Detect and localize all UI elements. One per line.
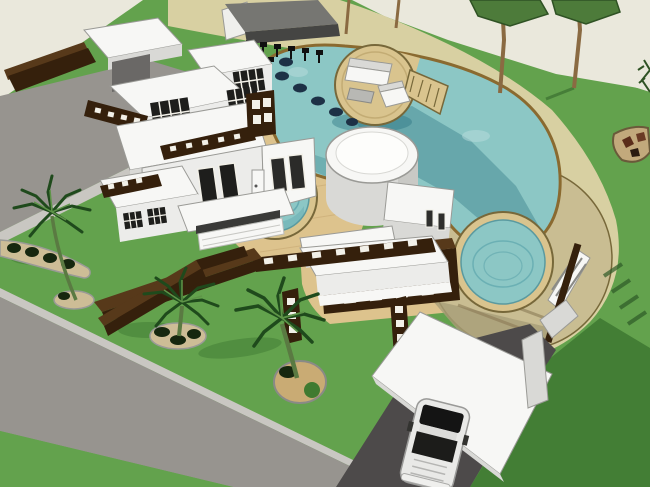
pool-rock — [275, 72, 289, 81]
leg-slot — [395, 306, 403, 313]
trellis-slot — [234, 134, 241, 140]
trellis-slot — [360, 245, 370, 252]
pool-rock — [311, 97, 325, 106]
palm-bed — [274, 361, 326, 403]
window-grid — [147, 207, 167, 225]
door-panel — [288, 154, 305, 189]
bar-stool — [316, 50, 323, 55]
screen-pane — [264, 113, 272, 122]
screen-pane — [263, 98, 271, 107]
bar-stool — [302, 48, 309, 53]
trellis-slot — [218, 137, 225, 143]
door-knob — [255, 185, 258, 188]
bush — [304, 382, 320, 398]
trellis-slot — [170, 146, 177, 152]
water-ripple — [462, 130, 490, 142]
screen-pane — [252, 100, 260, 109]
window-grid — [123, 211, 143, 229]
bar-stool — [288, 46, 295, 51]
shrub — [7, 243, 21, 253]
leg-slot — [396, 320, 404, 327]
shrub — [43, 253, 57, 263]
spa-pool-right — [453, 212, 553, 312]
bar-stool — [260, 42, 267, 47]
trellis-slot — [136, 178, 143, 184]
door-panel — [270, 157, 287, 192]
annex-door — [438, 213, 445, 230]
trellis-slot — [122, 181, 129, 187]
annex-door — [426, 210, 433, 227]
screen-pane — [253, 115, 261, 124]
rock-garden — [613, 127, 650, 162]
tower-top-inner — [336, 132, 408, 174]
shrub — [58, 292, 70, 300]
shrub — [187, 329, 201, 339]
trellis-slot — [336, 248, 346, 255]
trellis-slot — [264, 257, 274, 264]
trellis-slot — [312, 251, 322, 258]
water-ripple — [288, 67, 308, 77]
shrub — [154, 327, 170, 337]
shrub — [25, 247, 39, 257]
trellis-slot — [408, 239, 418, 246]
bar-stool — [274, 44, 281, 49]
trellis-slot — [108, 184, 115, 190]
shrub — [170, 335, 186, 345]
trellis-slot — [288, 254, 298, 261]
pool-rock — [329, 108, 343, 117]
trellis-slot — [186, 143, 193, 149]
trellis-slot — [202, 140, 209, 146]
pool-rock — [346, 118, 358, 126]
trellis-slot — [384, 242, 394, 249]
pool-rock — [293, 84, 307, 93]
render-canvas — [0, 0, 650, 487]
